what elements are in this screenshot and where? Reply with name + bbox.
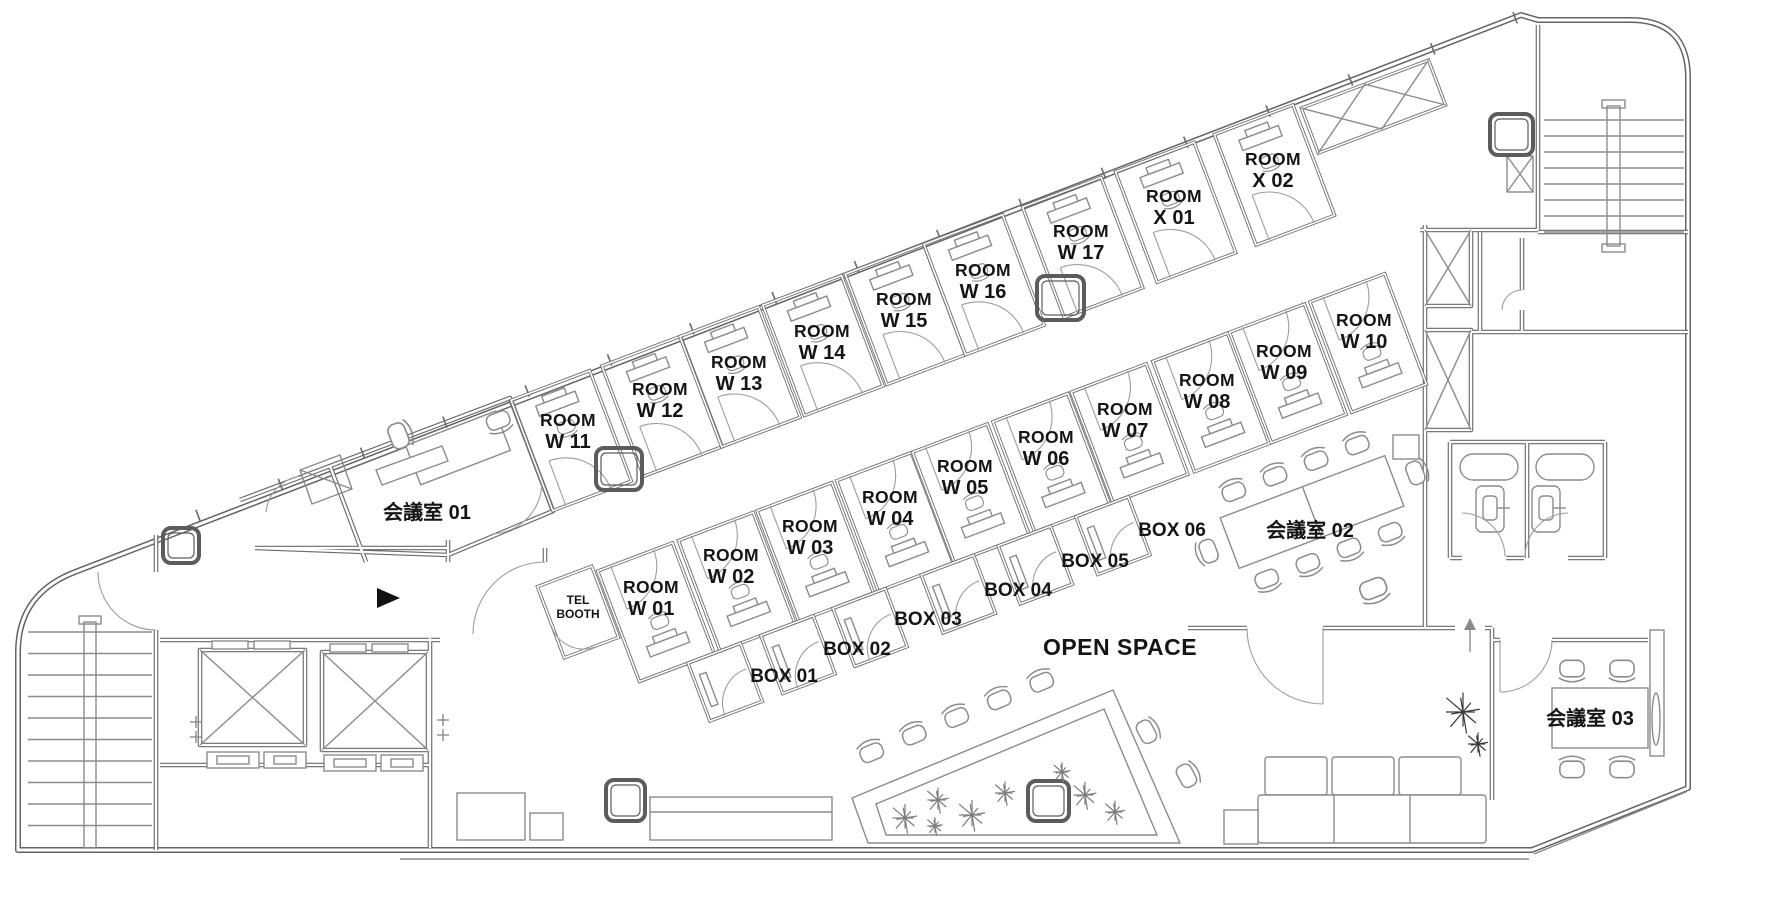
room-w02-number: W 02: [708, 566, 755, 588]
chair-icon: [1376, 520, 1407, 548]
chair-icon: [1300, 444, 1331, 472]
desk-icon: [725, 595, 771, 627]
meeting-table: [1220, 456, 1404, 569]
plant-icon: [927, 788, 948, 814]
top-right-staircase: [1544, 100, 1684, 252]
plant-icon: [995, 782, 1015, 806]
room-w17-number: W 17: [1058, 242, 1105, 264]
chair-icon: [1025, 666, 1056, 695]
chair-icon: [1357, 575, 1392, 607]
box-02-label: BOX 02: [823, 639, 891, 660]
left-staircase: [28, 616, 152, 848]
room-w02-label: ROOM: [703, 545, 759, 565]
desk-icon: [1356, 356, 1402, 388]
room-w11-number: W 11: [545, 431, 591, 453]
box-03-label: BOX 03: [894, 609, 962, 630]
room-w14-number: W 14: [799, 342, 847, 364]
room-w09-number: W 09: [1261, 362, 1308, 384]
room-w12-label: ROOM: [632, 379, 688, 399]
room-w06-number: W 06: [1023, 448, 1070, 470]
sink-icon: [1460, 454, 1518, 480]
plant-icon: [959, 800, 985, 832]
column: [596, 448, 642, 490]
room-x01-label: ROOM: [1146, 186, 1202, 206]
room-w05-label: ROOM: [937, 456, 993, 476]
door-arc: [473, 562, 545, 634]
column: [1393, 435, 1419, 459]
plant-icon: [1105, 801, 1125, 825]
door-arc: [492, 482, 542, 534]
room-w15-number: W 15: [881, 310, 928, 332]
column: [1028, 781, 1069, 821]
door-arc: [1502, 290, 1522, 310]
room-w17-label: ROOM: [1053, 221, 1109, 241]
open-space-label: OPEN SPACE: [1043, 634, 1197, 660]
room-w13-label: ROOM: [711, 352, 767, 372]
chair-icon: [1404, 457, 1432, 488]
desk-icon: [1276, 387, 1322, 419]
chair-icon: [1559, 756, 1585, 777]
chair-icon: [855, 736, 886, 765]
desk-icon: [1199, 416, 1245, 448]
sofa-seat: [1258, 795, 1486, 843]
room-w06-label: ROOM: [1018, 427, 1074, 447]
column: [1037, 276, 1084, 320]
room-w04-number: W 04: [867, 508, 915, 530]
room-w08-label: ROOM: [1179, 370, 1235, 390]
room-w09-label: ROOM: [1256, 341, 1312, 361]
chair-icon: [1559, 660, 1585, 681]
room-x02-label: ROOM: [1245, 149, 1301, 169]
box-05-label: BOX 05: [1061, 551, 1129, 572]
sofa-back: [1265, 757, 1327, 795]
box-04-label: BOX 04: [984, 580, 1052, 601]
room-x01-number: X 01: [1153, 207, 1194, 229]
toilet-icon: [1476, 486, 1504, 532]
desk-icon: [803, 565, 849, 597]
counter-outline: [852, 690, 1180, 843]
chair-icon: [1218, 476, 1249, 504]
column: [606, 780, 645, 821]
meeting-room-01-furniture: [300, 409, 514, 504]
chair-icon: [1293, 551, 1324, 579]
room-w10-number: W 10: [1341, 331, 1388, 353]
plant-icon: [1073, 782, 1096, 810]
chair-icon: [898, 719, 929, 748]
room-w11-label: ROOM: [540, 410, 596, 430]
room-w07-label: ROOM: [1097, 399, 1153, 419]
room-x02-number: X 02: [1252, 170, 1293, 192]
room-w15-label: ROOM: [876, 289, 932, 309]
side-table: [1224, 810, 1258, 844]
floorplan-canvas: ROOMW 11ROOMW 12ROOMW 13ROOMW 14ROOMW 15…: [0, 0, 1790, 917]
lounge-sofa: [1224, 757, 1486, 844]
room-w08-number: W 08: [1184, 391, 1231, 413]
chair-icon: [1609, 660, 1635, 681]
building-outline: [18, 15, 1688, 850]
room-w10-label: ROOM: [1336, 310, 1392, 330]
door-arc: [98, 572, 156, 630]
box-01-label: BOX 01: [750, 666, 818, 687]
plant-icon: [927, 817, 942, 836]
plant-icon: [1468, 733, 1488, 757]
desk-icon: [1118, 446, 1164, 478]
room-w13-number: W 13: [716, 373, 763, 395]
chair-icon: [1252, 567, 1283, 595]
chair-icon: [1134, 715, 1164, 747]
room-w05-number: W 05: [942, 477, 989, 499]
room-w03-label: ROOM: [782, 516, 838, 536]
chair-icon: [1174, 759, 1204, 791]
chair-icon: [1609, 756, 1635, 777]
desk-icon: [883, 535, 929, 567]
door-arc: [1500, 640, 1552, 692]
room-w14-label: ROOM: [794, 321, 850, 341]
whiteboard-icon: [1652, 693, 1660, 745]
sink-icon: [1536, 454, 1594, 480]
room-w16-number: W 16: [960, 281, 1007, 303]
meeting-room-02-label: 会議室 02: [1266, 518, 1354, 542]
room-w16-label: ROOM: [955, 260, 1011, 280]
desk-icon: [959, 506, 1005, 538]
structural-columns: [163, 114, 1533, 821]
sofa-back: [1332, 757, 1394, 795]
entrance-marker-icon: [377, 588, 400, 608]
chair-icon: [940, 701, 971, 730]
plant-icon: [893, 804, 918, 834]
room-w01-label: ROOM: [623, 577, 679, 597]
room-w03-number: W 03: [787, 537, 834, 559]
sofa-back: [1399, 757, 1461, 795]
room-labels: ROOMW 11ROOMW 12ROOMW 13ROOMW 14ROOMW 15…: [383, 149, 1634, 730]
desk-icon: [644, 625, 690, 657]
tel-booth-label-1: TEL: [567, 593, 590, 607]
plant-icon: [1446, 693, 1480, 734]
meeting-room-03-label: 会議室 03: [1546, 706, 1634, 730]
tel-booth-label-2: BOOTH: [556, 607, 599, 621]
room-w07-number: W 07: [1102, 420, 1149, 442]
door-arc: [1247, 628, 1323, 704]
meeting-room-01-label: 会議室 01: [383, 500, 471, 524]
chair-icon: [983, 683, 1014, 712]
chair-icon: [1192, 537, 1220, 568]
chair-icon: [1341, 429, 1372, 457]
meeting-room-03-furniture: [1552, 630, 1664, 778]
desk-icon: [1039, 476, 1085, 508]
column: [1490, 114, 1533, 155]
box-06-label: BOX 06: [1138, 520, 1206, 541]
room-w01-number: W 01: [628, 598, 675, 620]
meeting-room-02-furniture: [1192, 429, 1431, 607]
chair-icon: [1259, 460, 1290, 488]
room-w12-number: W 12: [637, 400, 684, 422]
toilet-icon: [1532, 486, 1560, 532]
room-w04-label: ROOM: [862, 487, 918, 507]
